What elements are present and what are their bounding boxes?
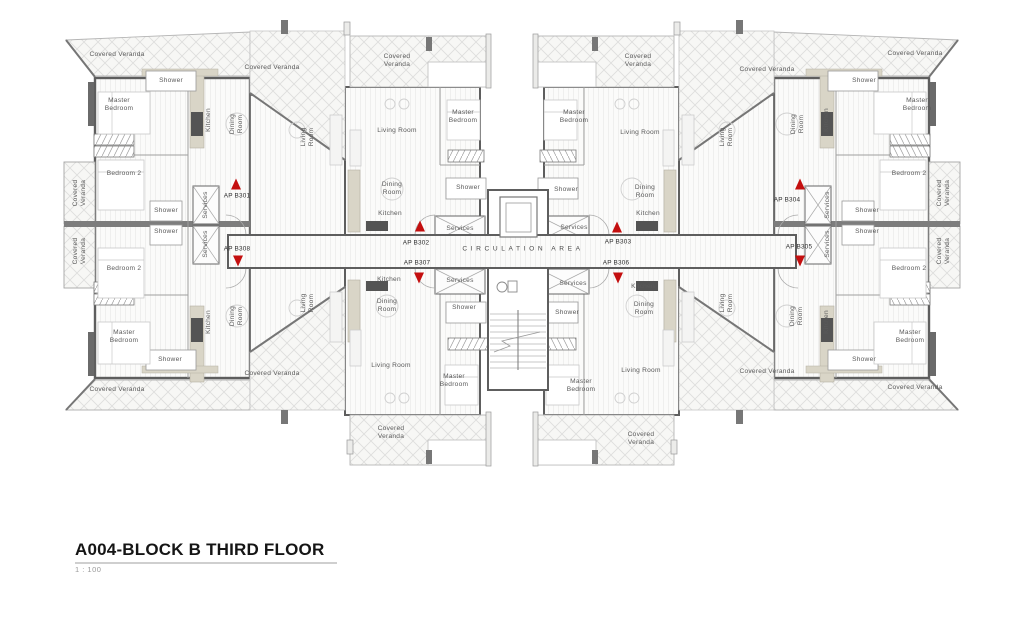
drawing-title: A004-BLOCK B THIRD FLOOR <box>75 540 337 560</box>
floorplan-drawing <box>0 0 1024 621</box>
title-underline <box>75 562 337 564</box>
drawing-scale: 1 : 100 <box>75 565 337 574</box>
title-block: A004-BLOCK B THIRD FLOOR 1 : 100 <box>75 540 337 574</box>
floorplan-canvas: Covered VerandaCovered VerandaShowerMast… <box>0 0 1024 621</box>
circulation-area-label: CIRCULATION AREA <box>462 246 583 253</box>
